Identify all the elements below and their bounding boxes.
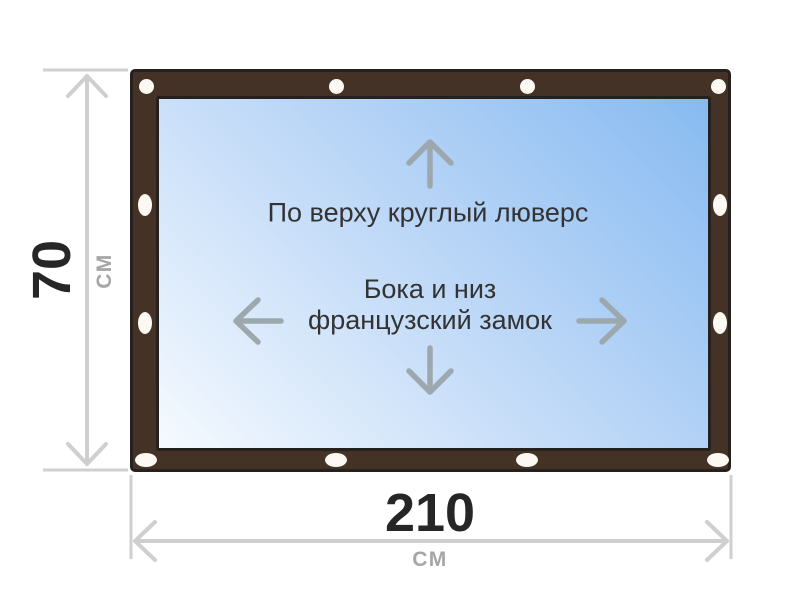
grommet-hole-icon bbox=[135, 453, 157, 467]
grommet-hole-icon bbox=[707, 453, 729, 467]
sides-bottom-note-line2: французский замок bbox=[308, 305, 552, 336]
sides-bottom-note-line1: Бока и низ bbox=[308, 274, 552, 305]
width-dimension-value: 210 bbox=[385, 482, 475, 544]
grommet-hole-icon bbox=[713, 194, 727, 216]
height-dimension-unit: СМ bbox=[93, 253, 117, 288]
grommet-hole-icon bbox=[520, 79, 535, 94]
tarp-frame bbox=[130, 69, 731, 472]
height-dimension-value: 70 bbox=[21, 240, 83, 300]
grommet-hole-icon bbox=[516, 453, 538, 467]
grommet-hole-icon bbox=[138, 312, 152, 334]
grommet-hole-icon bbox=[329, 79, 344, 94]
grommet-hole-icon bbox=[325, 453, 347, 467]
grommet-hole-icon bbox=[139, 79, 154, 94]
grommet-hole-icon bbox=[711, 79, 726, 94]
product-dimension-diagram: По верху круглый люверс Бока и низ франц… bbox=[0, 0, 800, 600]
top-edge-note: По верху круглый люверс bbox=[268, 198, 589, 229]
sides-bottom-note: Бока и низ французский замок bbox=[308, 274, 552, 336]
width-dimension-unit: СМ bbox=[412, 548, 447, 572]
grommet-hole-icon bbox=[713, 312, 727, 334]
grommet-hole-icon bbox=[138, 194, 152, 216]
